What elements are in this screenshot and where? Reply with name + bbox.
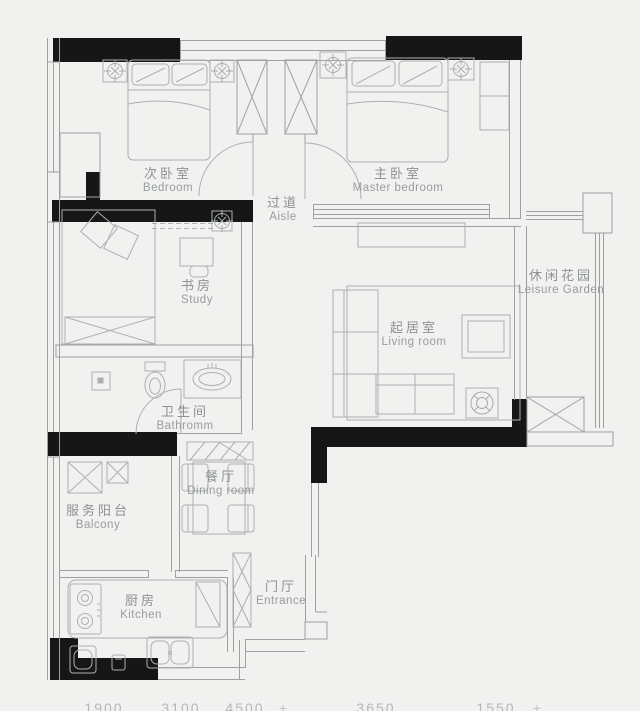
aisle-wardrobes bbox=[237, 60, 317, 143]
bedroom-furniture bbox=[103, 60, 234, 160]
lamp-icon bbox=[450, 58, 472, 80]
dimension-tick: + bbox=[533, 700, 541, 711]
doors bbox=[136, 142, 361, 434]
structural-walls bbox=[48, 36, 527, 680]
master-bedroom-furniture bbox=[320, 52, 509, 162]
dining-furniture bbox=[182, 442, 254, 534]
floor-plan-page: 次卧室 Bedroom 主卧室 Master bedroom 过道 Aisle … bbox=[0, 0, 640, 711]
dimension-value: 1900 bbox=[84, 700, 123, 711]
lamp-icon bbox=[211, 60, 233, 82]
living-room-furniture bbox=[333, 223, 520, 420]
lamp-icon bbox=[322, 54, 344, 76]
dimension-value: 4500 bbox=[225, 700, 264, 711]
dimension-value: 1550 bbox=[476, 700, 515, 711]
dimension-value: 3650 bbox=[356, 700, 395, 711]
bathroom-fixtures bbox=[92, 360, 241, 398]
living-room-lamp bbox=[471, 392, 493, 414]
entrance-cabinet bbox=[233, 553, 251, 627]
dimension-value: 3100 bbox=[161, 700, 200, 711]
balcony-fixtures bbox=[68, 462, 128, 493]
dimension-tick: + bbox=[279, 700, 287, 711]
lamp-icon bbox=[104, 60, 126, 82]
study-furniture bbox=[62, 210, 232, 344]
kitchen-fixtures bbox=[68, 580, 227, 673]
leisure-garden-structure bbox=[526, 193, 613, 446]
floor-plan-drawing bbox=[0, 0, 640, 711]
